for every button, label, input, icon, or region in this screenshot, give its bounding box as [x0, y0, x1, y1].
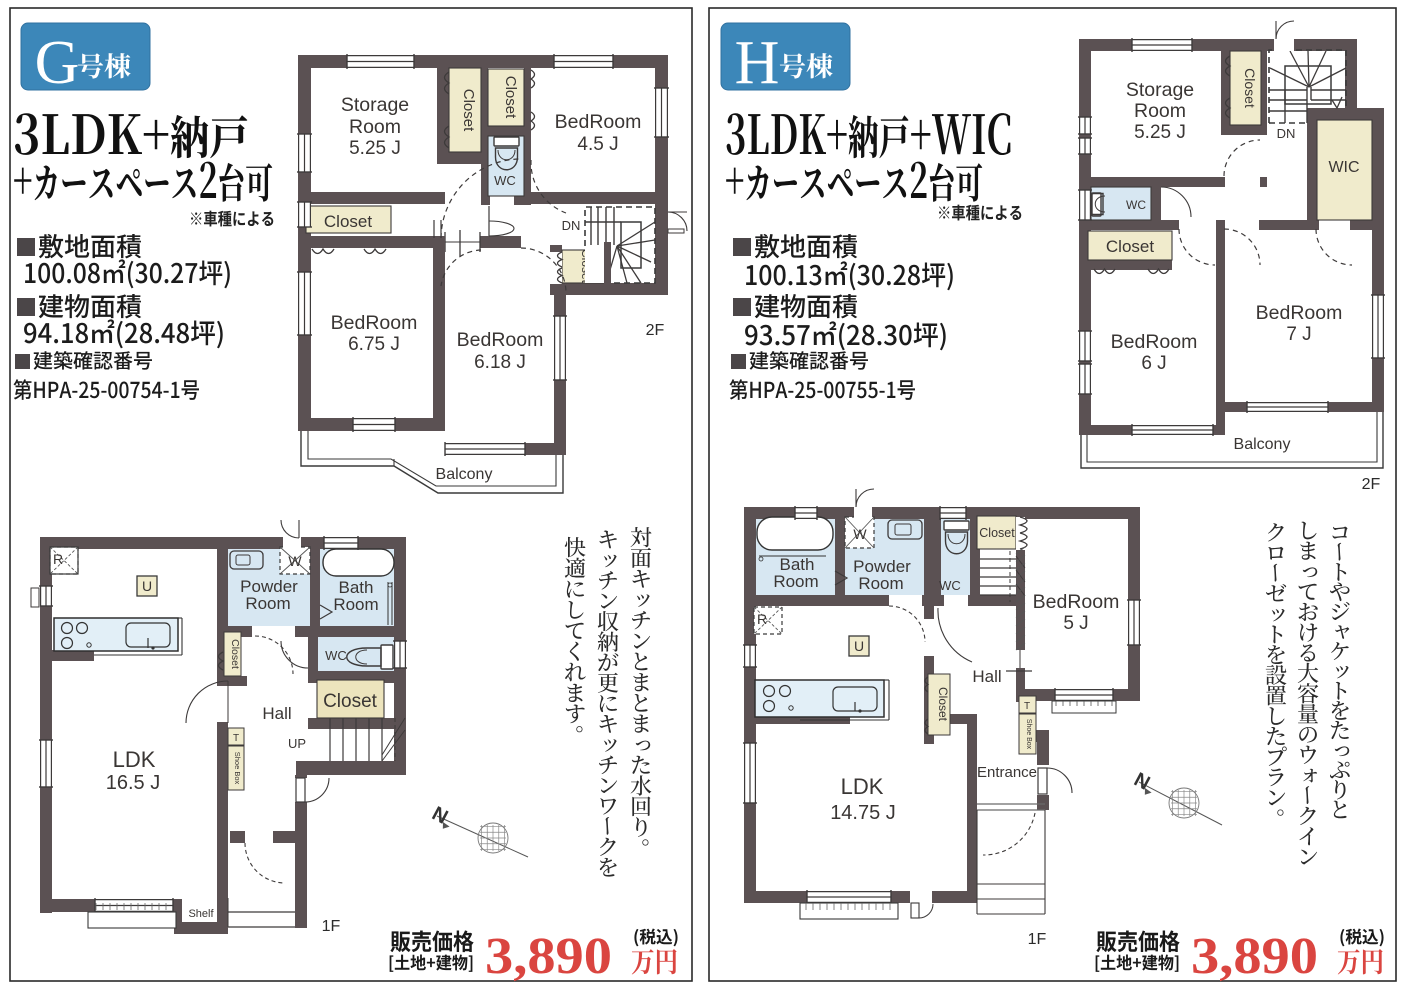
svg-text:Closet: Closet — [229, 639, 241, 669]
svg-text:4.5 J: 4.5 J — [577, 134, 618, 155]
svg-text:BedRoom: BedRoom — [1033, 591, 1120, 613]
svg-text:WIC: WIC — [1328, 159, 1359, 176]
svg-text:LDK: LDK — [841, 774, 884, 799]
svg-text:Room: Room — [349, 116, 401, 138]
svg-text:1F: 1F — [322, 918, 341, 935]
svg-text:Shoe Box: Shoe Box — [233, 752, 242, 785]
svg-text:U: U — [854, 638, 864, 654]
svg-text:Closet: Closet — [502, 76, 519, 119]
svg-text:UP: UP — [288, 736, 306, 751]
svg-text:W: W — [288, 553, 302, 569]
svg-text:14.75 J: 14.75 J — [830, 802, 896, 824]
svg-text:Closet: Closet — [1242, 68, 1258, 108]
svg-text:BedRoom: BedRoom — [457, 329, 544, 351]
svg-text:6 J: 6 J — [1141, 353, 1166, 374]
svg-text:Storage: Storage — [1126, 79, 1194, 101]
svg-text:R: R — [53, 551, 63, 567]
svg-text:3,890: 3,890 — [1191, 928, 1318, 985]
svg-text:Closet: Closet — [1106, 237, 1154, 256]
svg-text:LDK: LDK — [113, 747, 156, 772]
svg-text:5.25 J: 5.25 J — [349, 138, 401, 159]
svg-text:Closet: Closet — [324, 212, 372, 231]
svg-text:Closet: Closet — [323, 691, 378, 712]
svg-text:Room: Room — [858, 574, 903, 593]
svg-text:U: U — [142, 578, 152, 594]
svg-text:Shoe Box: Shoe Box — [1025, 719, 1032, 750]
svg-text:Room: Room — [1134, 100, 1186, 122]
svg-text:5.25 J: 5.25 J — [1134, 122, 1186, 143]
svg-text:7 J: 7 J — [1286, 324, 1311, 345]
svg-text:R: R — [757, 611, 767, 627]
svg-text:16.5 J: 16.5 J — [106, 772, 160, 794]
svg-text:WC: WC — [939, 578, 961, 593]
svg-text:G: G — [35, 29, 80, 97]
svg-text:6.75 J: 6.75 J — [348, 334, 400, 355]
svg-text:BedRoom: BedRoom — [555, 111, 642, 133]
svg-text:Hall: Hall — [262, 704, 291, 723]
svg-text:DN: DN — [1277, 126, 1296, 141]
svg-text:BedRoom: BedRoom — [1256, 302, 1343, 324]
svg-text:Room: Room — [773, 572, 818, 591]
svg-text:Closet: Closet — [460, 89, 477, 132]
svg-text:W: W — [853, 526, 867, 542]
svg-text:Balcony: Balcony — [1234, 436, 1291, 453]
svg-text:Room: Room — [333, 595, 378, 614]
svg-text:Closet: Closet — [936, 687, 950, 722]
svg-text:2F: 2F — [646, 322, 665, 339]
svg-text:6.18 J: 6.18 J — [474, 352, 526, 373]
svg-text:Hall: Hall — [972, 667, 1001, 686]
svg-text:T: T — [1024, 701, 1030, 712]
svg-text:Closet: Closet — [979, 526, 1015, 540]
svg-text:BedRoom: BedRoom — [1111, 331, 1198, 353]
svg-text:DN: DN — [562, 218, 581, 233]
svg-text:1F: 1F — [1028, 931, 1047, 948]
svg-text:T: T — [233, 733, 239, 744]
svg-text:Room: Room — [245, 594, 290, 613]
svg-text:3,890: 3,890 — [485, 928, 612, 985]
svg-text:WC: WC — [325, 648, 347, 663]
svg-text:Shelf: Shelf — [188, 908, 214, 920]
svg-text:WC: WC — [494, 173, 516, 188]
svg-text:2F: 2F — [1362, 476, 1381, 493]
svg-text:Storage: Storage — [341, 94, 409, 116]
svg-text:BedRoom: BedRoom — [331, 312, 418, 334]
svg-text:Entrance: Entrance — [977, 764, 1037, 781]
svg-text:Balcony: Balcony — [436, 466, 493, 483]
svg-text:WC: WC — [1126, 198, 1146, 212]
svg-text:H: H — [735, 29, 780, 97]
svg-text:5 J: 5 J — [1063, 613, 1088, 634]
